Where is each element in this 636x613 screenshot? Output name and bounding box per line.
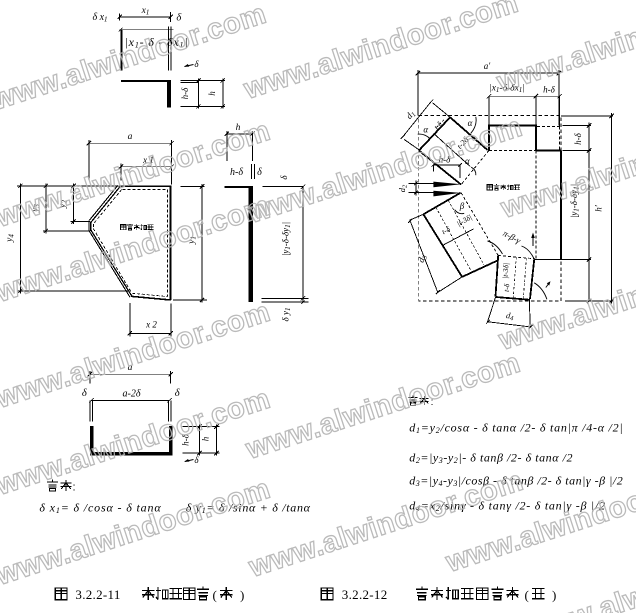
- svg-text:3.2.2-12: 3.2.2-12: [342, 587, 388, 602]
- svg-text:t-δ: t-δ: [502, 283, 512, 292]
- svg-text:(: (: [213, 588, 217, 603]
- svg-text:d1: d1: [404, 108, 418, 122]
- svg-text:|t-3δ|: |t-3δ|: [455, 213, 473, 229]
- svg-text:h′: h′: [594, 204, 604, 212]
- svg-text:): ): [240, 588, 244, 603]
- svg-text:δ: δ: [194, 455, 199, 465]
- svg-text:a′: a′: [484, 61, 492, 71]
- svg-text:|y1-δ-δy1|: |y1-δ-δy1|: [281, 222, 293, 256]
- svg-text:y4: y4: [5, 234, 16, 243]
- svg-text:δ x1: δ x1: [92, 12, 107, 24]
- svg-text:x 2: x 2: [145, 320, 157, 330]
- svg-text:www.alwindoor.com: www.alwindoor.com: [243, 111, 526, 230]
- svg-text:d1=y2/cosα - δ tanα /2- δ tan|: d1=y2/cosα - δ tanα /2- δ tan|π /4-α /2|: [409, 421, 623, 436]
- svg-text:): ): [552, 588, 556, 603]
- svg-text:|t-3δ|: |t-3δ|: [500, 263, 510, 280]
- svg-text:h-δ: h-δ: [230, 167, 243, 178]
- svg-text:δ: δ: [176, 13, 182, 24]
- svg-text::: :: [72, 482, 75, 494]
- svg-text:d2=|y3-y2|- δ tanβ /2- δ tanα: d2=|y3-y2|- δ tanβ /2- δ tanα /2: [409, 451, 573, 466]
- svg-text:δ: δ: [279, 175, 289, 180]
- svg-text:www.alwindoor.com: www.alwindoor.com: [0, 0, 270, 117]
- svg-text:h-δ: h-δ: [573, 132, 583, 144]
- svg-text:t-δ: t-δ: [440, 224, 452, 236]
- svg-text:δ: δ: [194, 59, 199, 69]
- svg-text:β: β: [459, 201, 465, 211]
- svg-text:δ: δ: [175, 388, 181, 399]
- svg-text:www.alwindoor.com: www.alwindoor.com: [494, 238, 636, 357]
- svg-text:a: a: [128, 132, 133, 142]
- svg-text:h: h: [201, 436, 211, 441]
- svg-text:a-2δ: a-2δ: [123, 389, 141, 400]
- svg-text:δ y1: δ y1: [281, 308, 293, 322]
- svg-text:h: h: [207, 91, 217, 96]
- svg-text:3.2.2-11: 3.2.2-11: [75, 587, 120, 602]
- svg-text:d2: d2: [397, 184, 409, 192]
- svg-text:α: α: [423, 125, 428, 135]
- svg-text:δ: δ: [257, 167, 262, 178]
- svg-text:π-β-γ: π-β-γ: [501, 228, 522, 246]
- svg-text:www.alwindoor.com: www.alwindoor.com: [0, 473, 274, 592]
- svg-text:(: (: [525, 588, 529, 603]
- svg-text:h-δ: h-δ: [543, 85, 555, 95]
- svg-text:h-δ: h-δ: [180, 87, 190, 99]
- svg-text:www.alwindoor.com: www.alwindoor.com: [239, 0, 522, 106]
- svg-text:x1: x1: [141, 6, 150, 17]
- svg-text:δ: δ: [82, 388, 88, 399]
- svg-text:www.alwindoor.com: www.alwindoor.com: [241, 347, 524, 466]
